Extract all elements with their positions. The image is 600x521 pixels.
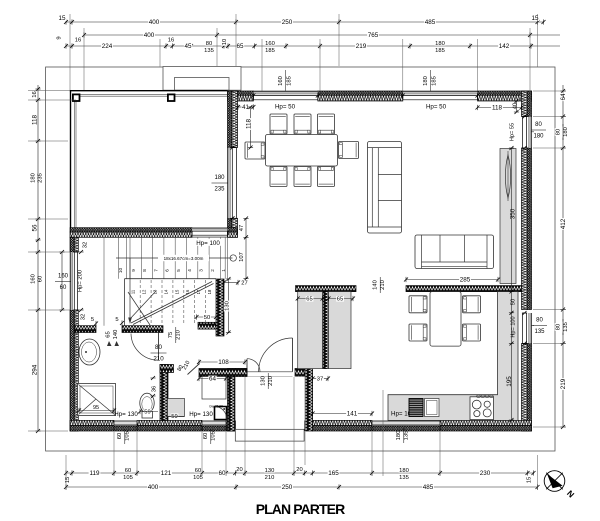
svg-text:Hp= 130: Hp= 130 [189, 411, 213, 418]
svg-text:Hp= 100: Hp= 100 [511, 316, 517, 337]
svg-text:75: 75 [168, 332, 174, 338]
svg-text:80: 80 [155, 344, 162, 351]
svg-text:185: 185 [265, 48, 275, 54]
svg-text:11: 11 [131, 289, 136, 294]
svg-text:20: 20 [236, 467, 242, 473]
svg-text:180: 180 [533, 134, 544, 140]
svg-text:41: 41 [242, 105, 249, 111]
svg-text:15: 15 [58, 15, 66, 22]
svg-text:230: 230 [480, 470, 491, 477]
svg-text:10: 10 [118, 268, 123, 274]
svg-text:180: 180 [423, 76, 429, 86]
svg-text:1: 1 [221, 269, 226, 272]
svg-text:59: 59 [144, 410, 150, 416]
svg-text:160: 160 [30, 274, 36, 284]
svg-text:180: 180 [30, 173, 36, 183]
svg-text:235: 235 [37, 173, 43, 183]
svg-text:10: 10 [222, 39, 228, 45]
svg-text:180: 180 [563, 127, 569, 137]
svg-text:5: 5 [91, 317, 94, 323]
svg-text:80: 80 [556, 129, 562, 135]
svg-text:185: 185 [286, 76, 292, 86]
svg-text:60: 60 [60, 285, 67, 291]
svg-text:130: 130 [261, 376, 267, 386]
svg-text:5: 5 [176, 269, 181, 272]
svg-text:5: 5 [115, 317, 118, 323]
svg-text:210: 210 [265, 475, 275, 481]
svg-text:118: 118 [32, 114, 39, 125]
svg-text:105: 105 [193, 475, 203, 481]
svg-text:15: 15 [174, 289, 179, 294]
svg-text:15: 15 [527, 477, 533, 483]
svg-text:60: 60 [37, 276, 43, 282]
svg-text:142: 142 [499, 43, 510, 50]
svg-text:50: 50 [511, 299, 517, 305]
svg-text:50: 50 [204, 315, 210, 321]
svg-text:219: 219 [356, 43, 367, 50]
svg-text:32: 32 [81, 314, 87, 320]
svg-text:105: 105 [125, 431, 131, 441]
svg-text:32: 32 [83, 242, 89, 248]
svg-text:64: 64 [209, 376, 217, 383]
svg-text:60: 60 [195, 468, 201, 474]
svg-text:16: 16 [75, 38, 81, 44]
svg-text:250: 250 [282, 484, 293, 491]
svg-text:45: 45 [184, 43, 192, 50]
svg-text:250: 250 [282, 19, 293, 26]
svg-text:210: 210 [380, 280, 386, 290]
svg-text:15: 15 [531, 15, 539, 22]
svg-text:6: 6 [165, 269, 170, 272]
svg-text:119: 119 [89, 470, 100, 477]
svg-text:118: 118 [246, 118, 253, 129]
svg-text:Hp= 55: Hp= 55 [510, 123, 516, 141]
svg-text:Hp= 200: Hp= 200 [78, 270, 84, 292]
svg-text:7: 7 [153, 269, 158, 272]
svg-text:135: 135 [563, 322, 569, 332]
svg-text:412: 412 [560, 218, 567, 229]
svg-text:65: 65 [337, 297, 343, 303]
svg-text:16: 16 [168, 38, 174, 44]
svg-text:285: 285 [460, 277, 471, 284]
svg-text:165: 165 [328, 470, 339, 477]
svg-text:224: 224 [102, 43, 113, 50]
svg-text:140: 140 [373, 280, 379, 290]
svg-text:Gw 25.03: Gw 25.03 [209, 405, 223, 409]
svg-text:105: 105 [211, 431, 217, 441]
svg-text:60: 60 [117, 433, 123, 439]
svg-text:PLAN PARTER: PLAN PARTER [256, 501, 345, 516]
svg-text:160: 160 [278, 76, 284, 86]
svg-text:160: 160 [265, 41, 275, 47]
svg-text:Hp= 100: Hp= 100 [196, 240, 220, 247]
svg-text:65: 65 [106, 331, 112, 337]
svg-text:47: 47 [239, 225, 245, 231]
svg-text:210: 210 [153, 356, 164, 363]
svg-text:118: 118 [492, 105, 503, 112]
svg-text:140: 140 [113, 330, 119, 340]
svg-text:185: 185 [431, 76, 437, 86]
svg-text:195: 195 [506, 376, 513, 387]
svg-text:108: 108 [218, 359, 229, 366]
svg-text:294: 294 [32, 364, 39, 375]
svg-text:180: 180 [399, 468, 409, 474]
svg-text:485: 485 [423, 484, 434, 491]
svg-text:185: 185 [435, 48, 445, 54]
svg-text:400: 400 [149, 19, 160, 26]
svg-text:210: 210 [176, 330, 182, 340]
svg-text:350: 350 [510, 208, 517, 219]
svg-text:400: 400 [148, 484, 159, 491]
svg-text:180: 180 [214, 175, 225, 181]
svg-text:18x16.67cm=3.00m: 18x16.67cm=3.00m [164, 256, 204, 261]
svg-text:3: 3 [199, 269, 204, 272]
svg-text:135: 135 [399, 475, 409, 481]
svg-text:180: 180 [396, 431, 402, 441]
svg-text:135: 135 [534, 329, 545, 335]
svg-text:135: 135 [204, 48, 214, 54]
svg-text:20: 20 [296, 467, 302, 473]
svg-text:105: 105 [123, 475, 133, 481]
svg-text:210: 210 [268, 376, 274, 386]
svg-text:80: 80 [206, 41, 212, 47]
svg-text:60: 60 [203, 433, 209, 439]
svg-text:130: 130 [225, 301, 231, 311]
svg-text:219: 219 [560, 378, 567, 389]
svg-text:8: 8 [142, 269, 147, 272]
svg-text:130: 130 [265, 468, 275, 474]
svg-text:59: 59 [171, 414, 177, 420]
svg-text:180: 180 [435, 41, 445, 47]
svg-text:95: 95 [93, 405, 99, 411]
svg-text:18: 18 [207, 289, 212, 294]
svg-text:36: 36 [152, 386, 158, 392]
svg-text:485: 485 [425, 19, 436, 26]
svg-text:16: 16 [32, 91, 38, 97]
svg-text:400: 400 [144, 32, 155, 39]
svg-text:80: 80 [536, 318, 543, 324]
svg-text:40: 40 [513, 103, 519, 109]
svg-text:37: 37 [317, 377, 323, 383]
svg-text:60: 60 [218, 470, 226, 477]
svg-text:9: 9 [131, 269, 136, 272]
svg-text:65: 65 [236, 43, 244, 50]
svg-text:60: 60 [125, 468, 131, 474]
svg-text:2: 2 [210, 269, 215, 272]
svg-text:80: 80 [556, 324, 562, 330]
svg-text:4: 4 [187, 269, 192, 272]
svg-text:Hp= 50: Hp= 50 [275, 104, 296, 111]
svg-text:65: 65 [306, 297, 312, 303]
svg-text:14: 14 [163, 289, 168, 294]
svg-text:64: 64 [560, 93, 567, 101]
svg-text:141: 141 [347, 411, 358, 418]
svg-text:80: 80 [535, 122, 542, 128]
svg-text:27: 27 [241, 281, 247, 287]
svg-text:Hp= 50: Hp= 50 [426, 104, 447, 111]
svg-text:Hp= 130: Hp= 130 [114, 411, 138, 418]
svg-text:135: 135 [404, 431, 410, 441]
svg-text:12: 12 [142, 289, 147, 294]
svg-text:107: 107 [239, 252, 245, 262]
svg-text:121: 121 [161, 470, 172, 477]
svg-text:56: 56 [32, 224, 39, 232]
svg-text:160: 160 [58, 274, 69, 280]
svg-text:235: 235 [214, 187, 225, 193]
svg-text:765: 765 [368, 32, 379, 39]
svg-text:9: 9 [57, 36, 63, 39]
